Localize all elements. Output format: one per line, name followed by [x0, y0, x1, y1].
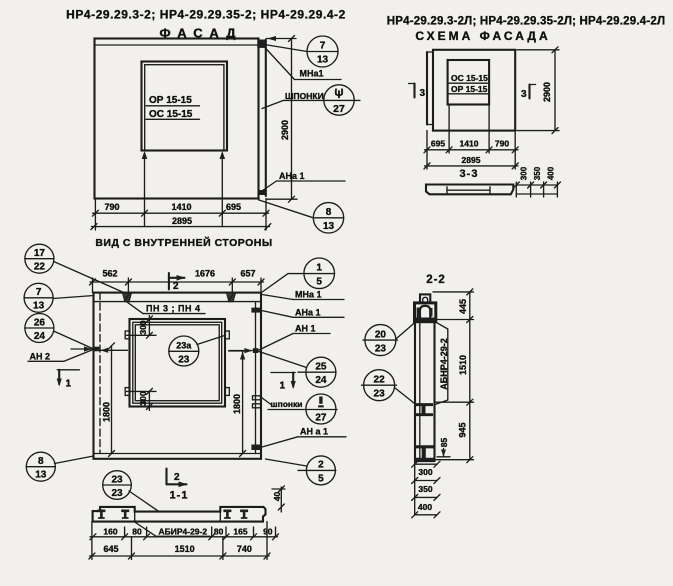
- svg-text:Ψ: Ψ: [335, 89, 344, 101]
- svg-text:НР4-29.29.3-2Л; НР4-29.29.35-2: НР4-29.29.3-2Л; НР4-29.29.35-2Л; НР4-29.…: [387, 16, 665, 28]
- svg-text:695: 695: [431, 139, 445, 149]
- svg-text:13: 13: [35, 470, 47, 481]
- svg-text:2900: 2900: [542, 82, 552, 102]
- svg-text:СХЕМА ФАСАДА: СХЕМА ФАСАДА: [415, 29, 550, 43]
- svg-text:АНа 1: АНа 1: [295, 307, 321, 317]
- svg-text:13: 13: [323, 221, 335, 232]
- svg-text:ОС 15-15: ОС 15-15: [451, 73, 488, 83]
- svg-text:400: 400: [418, 502, 432, 512]
- svg-text:645: 645: [103, 544, 118, 554]
- svg-text:27: 27: [315, 413, 327, 424]
- svg-text:23а: 23а: [176, 341, 192, 351]
- svg-text:1800: 1800: [232, 394, 242, 414]
- svg-text:695: 695: [226, 202, 241, 212]
- svg-text:300: 300: [138, 320, 148, 334]
- svg-text:740: 740: [237, 544, 252, 554]
- svg-text:350: 350: [418, 484, 432, 494]
- svg-text:1510: 1510: [175, 544, 195, 554]
- svg-text:445: 445: [458, 299, 468, 314]
- svg-text:АН 1: АН 1: [295, 324, 316, 334]
- svg-text:1: 1: [66, 379, 72, 390]
- svg-text:3: 3: [521, 89, 527, 100]
- svg-text:23: 23: [111, 488, 123, 499]
- svg-text:1676: 1676: [195, 269, 215, 279]
- svg-text:300: 300: [138, 391, 148, 405]
- svg-text:350: 350: [533, 166, 542, 180]
- svg-text:23: 23: [178, 355, 190, 366]
- svg-text:ОР 15-15: ОР 15-15: [451, 84, 488, 94]
- svg-text:7: 7: [320, 41, 326, 52]
- svg-text:23: 23: [375, 343, 387, 354]
- svg-text:АН 2: АН 2: [30, 352, 51, 362]
- svg-text:АН а 1: АН а 1: [300, 427, 328, 437]
- svg-text:40: 40: [272, 492, 282, 502]
- svg-text:8: 8: [38, 456, 44, 467]
- svg-text:13: 13: [33, 301, 45, 312]
- svg-text:ВИД С ВНУТРЕННЕЙ СТОРОНЫ: ВИД С ВНУТРЕННЕЙ СТОРОНЫ: [95, 236, 272, 249]
- svg-text:5: 5: [318, 473, 324, 484]
- svg-text:562: 562: [102, 269, 117, 279]
- svg-text:945: 945: [458, 422, 468, 437]
- svg-text:МНа 1: МНа 1: [295, 290, 322, 300]
- svg-text:26: 26: [34, 317, 46, 328]
- svg-text:1800: 1800: [101, 402, 111, 422]
- svg-text:ШПОНКИ: ШПОНКИ: [285, 91, 324, 101]
- svg-text:АНа 1: АНа 1: [279, 171, 305, 181]
- svg-text:23: 23: [374, 388, 386, 399]
- svg-text:27: 27: [333, 103, 345, 115]
- svg-text:1510: 1510: [458, 355, 468, 375]
- svg-text:300: 300: [418, 467, 432, 477]
- svg-text:2: 2: [173, 281, 179, 292]
- svg-text:23: 23: [111, 474, 123, 485]
- svg-text:24: 24: [34, 331, 46, 342]
- svg-text:165: 165: [233, 527, 247, 537]
- svg-text:1: 1: [316, 263, 322, 274]
- svg-text:160: 160: [103, 527, 117, 537]
- svg-text:8: 8: [326, 207, 332, 218]
- svg-text:85: 85: [439, 438, 449, 448]
- svg-text:НР4-29.29.3-2; НР4-29.29.35-2;: НР4-29.29.3-2; НР4-29.29.35-2; НР4-29.29…: [66, 8, 346, 22]
- svg-text:ОР 15-15: ОР 15-15: [149, 95, 192, 106]
- svg-text:22: 22: [374, 375, 386, 386]
- svg-text:1-1: 1-1: [170, 490, 189, 502]
- svg-text:МНа1: МНа1: [300, 69, 324, 79]
- svg-text:80: 80: [214, 527, 224, 537]
- svg-text:1410: 1410: [460, 139, 479, 149]
- svg-text:13: 13: [317, 55, 329, 66]
- svg-text:20: 20: [375, 329, 387, 340]
- svg-text:24: 24: [315, 375, 327, 386]
- svg-text:790: 790: [495, 139, 509, 149]
- svg-text:25: 25: [315, 362, 327, 373]
- svg-text:шпонки: шпонки: [271, 399, 303, 409]
- svg-text:90: 90: [263, 527, 273, 537]
- svg-text:АБИР4-29-2: АБИР4-29-2: [159, 527, 208, 537]
- svg-text:3: 3: [420, 88, 426, 99]
- svg-text:400: 400: [546, 166, 555, 180]
- svg-text:657: 657: [240, 269, 255, 279]
- svg-text:1410: 1410: [171, 202, 191, 212]
- svg-text:22: 22: [34, 262, 46, 273]
- svg-text:1: 1: [280, 381, 286, 392]
- svg-text:790: 790: [104, 202, 119, 212]
- svg-text:ОС 15-15: ОС 15-15: [149, 109, 193, 120]
- svg-text:80: 80: [132, 527, 142, 537]
- svg-text:2-2: 2-2: [426, 274, 446, 286]
- svg-text:5: 5: [316, 277, 322, 288]
- svg-text:2: 2: [318, 460, 324, 471]
- svg-text:3-3: 3-3: [460, 168, 479, 180]
- svg-text:2900: 2900: [280, 120, 290, 140]
- svg-text:ПН 3 ; ПН 4: ПН 3 ; ПН 4: [146, 304, 200, 314]
- svg-text:2895: 2895: [172, 216, 192, 226]
- svg-text:2: 2: [174, 472, 180, 483]
- svg-text:17: 17: [34, 248, 46, 259]
- svg-text:300: 300: [519, 166, 528, 180]
- svg-text:2895: 2895: [462, 155, 481, 165]
- svg-text:7: 7: [36, 287, 42, 298]
